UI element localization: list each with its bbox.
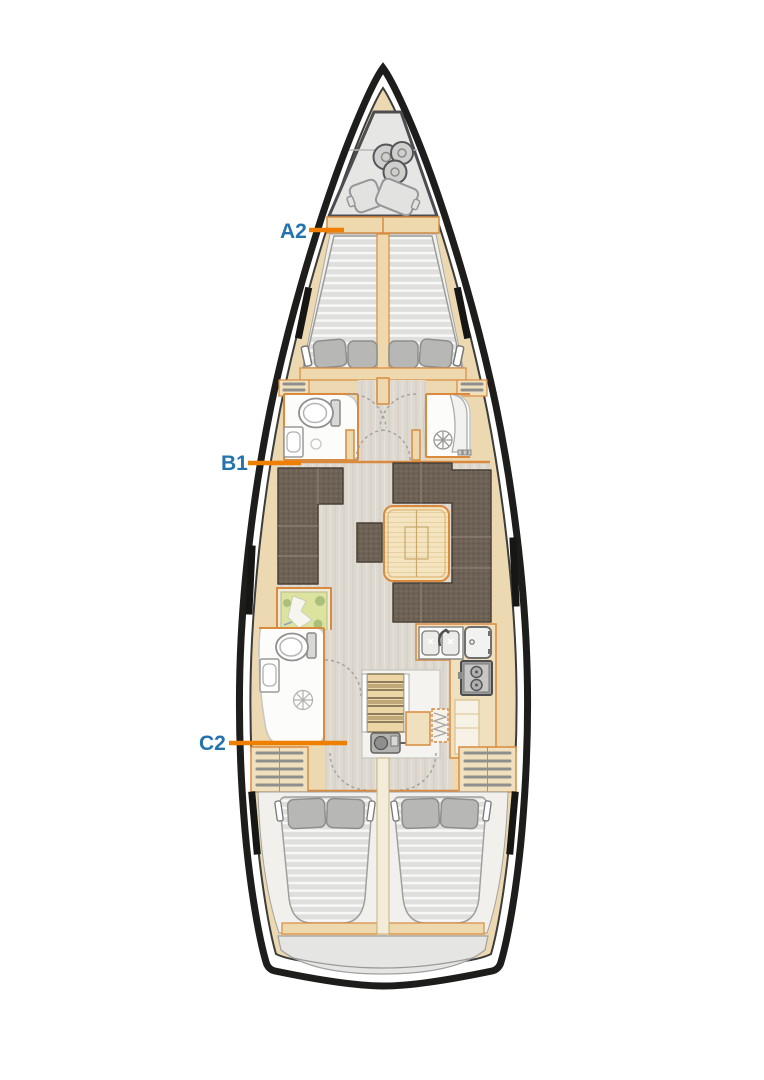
- berth-foot-board-port-aft: [282, 923, 377, 934]
- shower-drain-aft: [294, 691, 313, 710]
- washbasin-forward: [284, 427, 303, 457]
- galley-stove: [458, 661, 492, 695]
- aft-cabin-divider: [377, 758, 389, 934]
- aft-cabin-starboard: [389, 792, 508, 934]
- saloon-table: [384, 506, 449, 581]
- folding-seat-stowed: [432, 709, 448, 742]
- label-a2-text: A2: [280, 220, 307, 243]
- shower-fittings: [458, 450, 471, 455]
- engine: [371, 733, 406, 753]
- berth-foot-board-starboard-aft: [389, 923, 484, 934]
- stove-gimbal: [458, 672, 462, 679]
- wardrobe-port-aft: [251, 747, 308, 792]
- galley-lower-counter: [455, 700, 479, 754]
- aft-head-port: [259, 628, 324, 743]
- companionway: [362, 670, 448, 758]
- label-b1-text: B1: [221, 452, 248, 475]
- galley-fridge: [465, 627, 492, 658]
- aft-cabin-port: [258, 792, 377, 934]
- galley-double-sink: [419, 627, 463, 659]
- layout-plan-drawing: A2 B1 C2: [0, 0, 764, 1080]
- companionway-cabinet: [406, 712, 430, 745]
- yacht-layout-plan: A2 B1 C2: [0, 0, 764, 1080]
- toilet-aft: [276, 633, 316, 661]
- companionway-stairs: [362, 674, 409, 732]
- washbasin-aft: [260, 659, 279, 692]
- saloon-stool: [357, 523, 382, 562]
- shower-drain: [434, 431, 452, 449]
- berth-center-divider: [377, 234, 389, 374]
- wardrobe-starboard-aft: [459, 747, 516, 792]
- toilet-forward: [299, 399, 340, 428]
- forward-shower-starboard: [424, 394, 471, 457]
- label-c2-text: C2: [199, 732, 226, 755]
